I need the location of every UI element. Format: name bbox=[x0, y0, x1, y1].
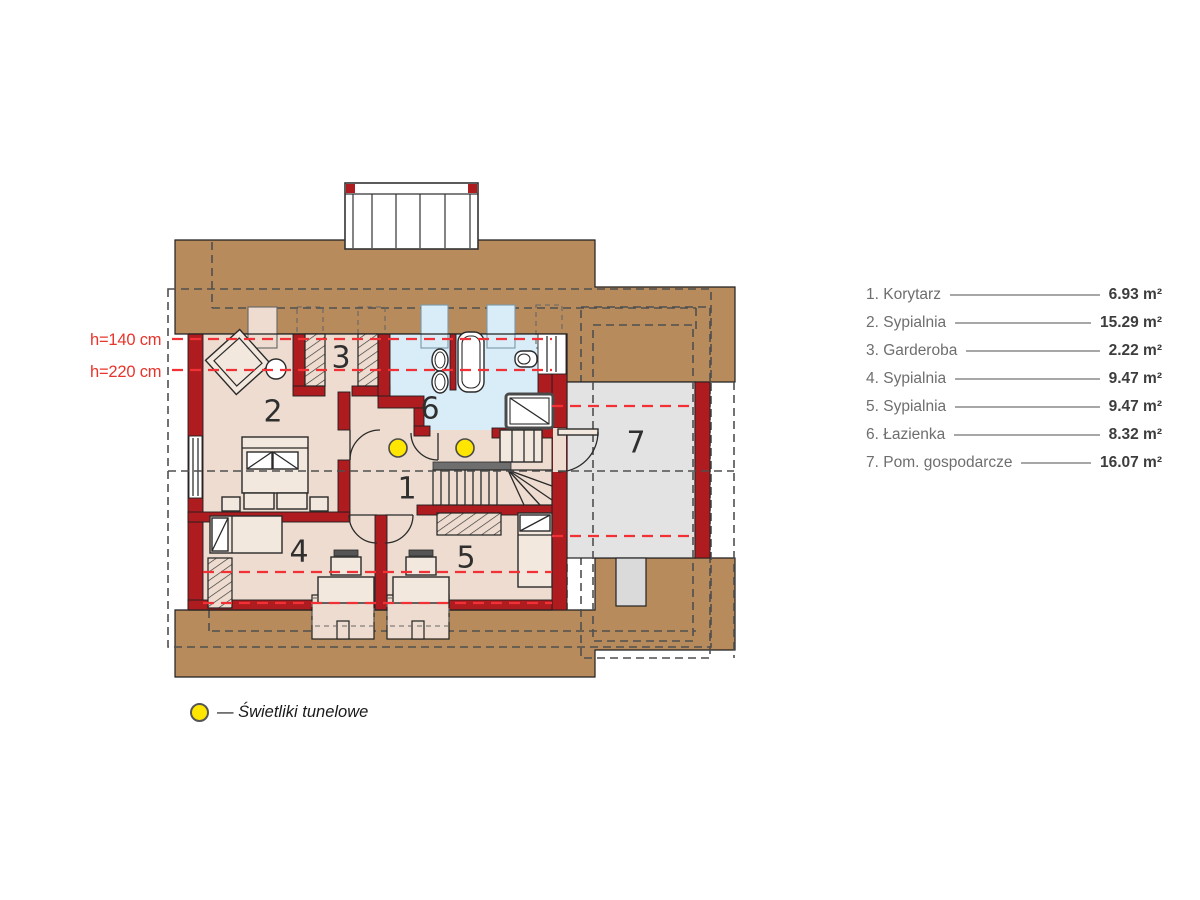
skylight-icon bbox=[456, 439, 474, 457]
legend-room-label: 5. Sypialnia bbox=[866, 398, 946, 416]
legend-leader-line bbox=[954, 434, 1099, 436]
utility-room-floor bbox=[567, 382, 695, 558]
nightstand bbox=[310, 497, 328, 511]
room-number-3: 3 bbox=[331, 341, 350, 376]
room-number-4: 4 bbox=[289, 535, 308, 570]
legend-row: 3. Garderoba 2.22 m² bbox=[866, 337, 1162, 365]
legend-row: 1. Korytarz 6.93 m² bbox=[866, 281, 1162, 309]
legend-leader-line bbox=[966, 350, 1099, 352]
legend-leader-line bbox=[1021, 462, 1090, 464]
legend-room-label: 2. Sypialnia bbox=[866, 314, 946, 332]
legend-leader-line bbox=[955, 378, 1099, 380]
legend-row: 5. Sypialnia 9.47 m² bbox=[866, 393, 1162, 421]
room-number-5: 5 bbox=[456, 541, 475, 576]
legend-leader-line bbox=[950, 294, 1100, 296]
roof-window bbox=[248, 307, 277, 348]
skylight-legend: — Świetliki tunelowe bbox=[190, 703, 368, 722]
legend-room-label: 7. Pom. gospodarcze bbox=[866, 454, 1012, 472]
room-legend: 1. Korytarz 6.93 m² 2. Sypialnia 15.29 m… bbox=[866, 281, 1162, 477]
legend-room-area: 2.22 m² bbox=[1109, 342, 1162, 360]
legend-room-label: 6. Łazienka bbox=[866, 426, 945, 444]
legend-room-label: 1. Korytarz bbox=[866, 286, 941, 304]
single-bed bbox=[518, 513, 552, 587]
skylight-legend-text: — Świetliki tunelowe bbox=[217, 703, 368, 722]
chimney bbox=[345, 183, 478, 249]
skylight-legend-icon bbox=[190, 703, 209, 722]
single-bed bbox=[210, 516, 282, 553]
legend-room-area: 8.32 m² bbox=[1109, 426, 1162, 444]
wardrobe bbox=[437, 513, 501, 535]
legend-room-area: 6.93 m² bbox=[1109, 286, 1162, 304]
desk bbox=[393, 577, 449, 603]
legend-room-area: 9.47 m² bbox=[1109, 398, 1162, 416]
shower-icon bbox=[506, 394, 553, 428]
nightstand bbox=[222, 497, 240, 511]
legend-row: 4. Sypialnia 9.47 m² bbox=[866, 365, 1162, 393]
roof-window bbox=[487, 305, 515, 348]
wardrobe bbox=[305, 334, 325, 386]
skylight-icon bbox=[389, 439, 407, 457]
window-icon bbox=[189, 436, 202, 498]
legend-room-area: 9.47 m² bbox=[1109, 370, 1162, 388]
stair-upper-steps bbox=[500, 430, 542, 462]
room-number-7: 7 bbox=[626, 426, 645, 461]
stair-railing bbox=[433, 462, 511, 470]
room-number-1: 1 bbox=[397, 472, 416, 507]
legend-room-label: 4. Sypialnia bbox=[866, 370, 946, 388]
monitor-icon bbox=[334, 550, 358, 556]
legend-room-area: 16.07 m² bbox=[1100, 454, 1162, 472]
legend-row: 6. Łazienka 8.32 m² bbox=[866, 421, 1162, 449]
height-label-140: h=140 cm bbox=[90, 331, 161, 350]
legend-leader-line bbox=[955, 406, 1099, 408]
wardrobe bbox=[208, 558, 232, 608]
desk bbox=[318, 577, 374, 603]
legend-row: 7. Pom. gospodarcze 16.07 m² bbox=[866, 449, 1162, 477]
legend-room-area: 15.29 m² bbox=[1100, 314, 1162, 332]
chimney-duct bbox=[616, 558, 646, 606]
legend-room-label: 3. Garderoba bbox=[866, 342, 957, 360]
wardrobe bbox=[358, 334, 378, 386]
legend-row: 2. Sypialnia 15.29 m² bbox=[866, 309, 1162, 337]
door-leaf bbox=[558, 429, 598, 435]
roof-window bbox=[421, 305, 448, 348]
height-label-220: h=220 cm bbox=[90, 363, 161, 382]
legend-leader-line bbox=[955, 322, 1091, 324]
monitor-icon bbox=[409, 550, 433, 556]
room-number-2: 2 bbox=[263, 395, 282, 430]
room-number-6: 6 bbox=[420, 392, 439, 427]
